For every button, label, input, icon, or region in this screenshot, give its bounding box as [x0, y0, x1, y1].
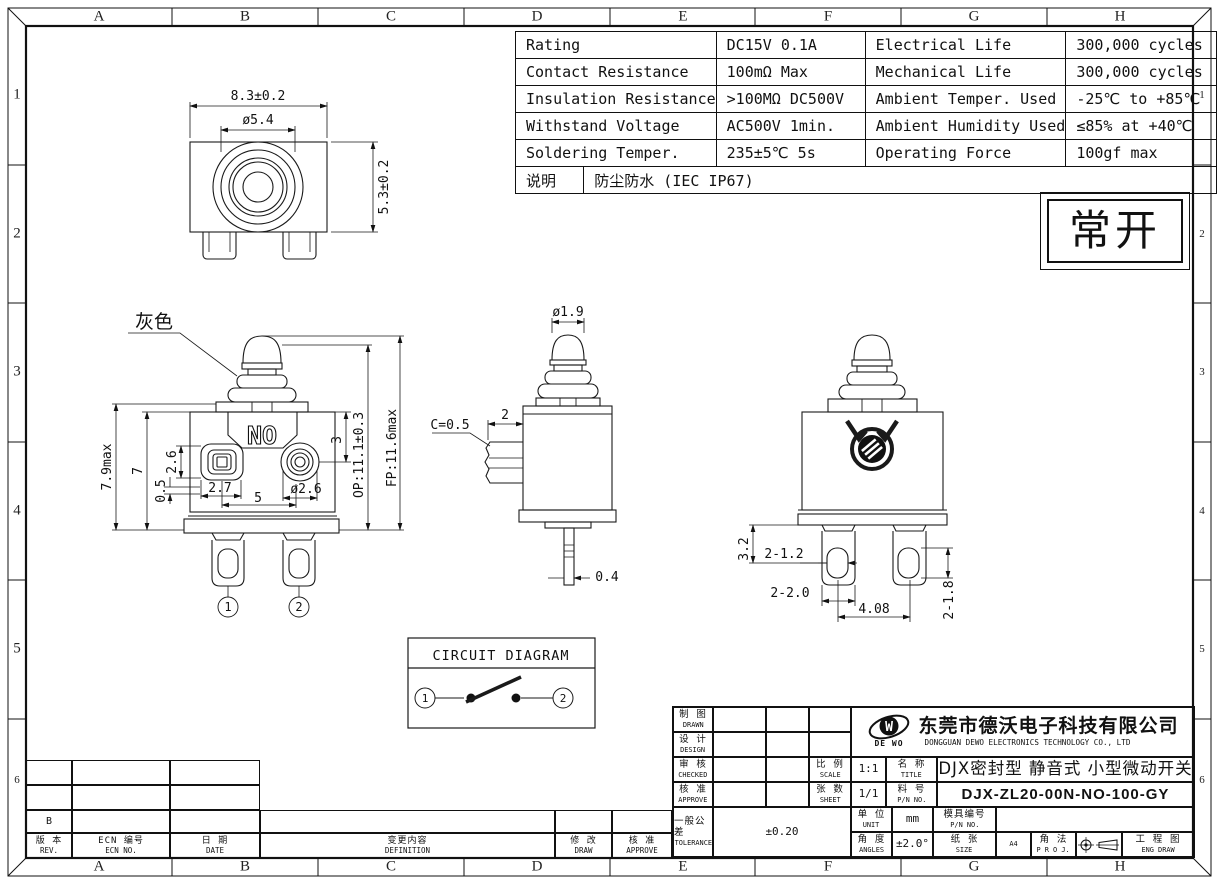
unit-label: 单 位 UNIT	[851, 807, 892, 832]
dim-side-thickness: 0.4	[595, 570, 619, 585]
tolerance-label: 一般公差 TOLERANCE	[673, 807, 713, 857]
dim-front-dia: ø2.6	[290, 482, 321, 497]
dim-front-hmax: 7.9max	[100, 443, 115, 490]
table-row: Withstand Voltage AC500V 1min. Ambient H…	[516, 113, 1217, 140]
dim-side-dia: ø1.9	[552, 305, 583, 320]
sheet-label: 张 数 SHEET	[809, 782, 851, 807]
dim-top-dia: ø5.4	[242, 113, 273, 128]
spec-label: Withstand Voltage	[516, 113, 717, 140]
left-zone-2: 2	[13, 226, 21, 243]
right-zone-5: 5	[1199, 643, 1205, 655]
left-zone-5: 5	[13, 641, 21, 658]
dim-top-height: 5.3±0.2	[377, 160, 392, 215]
no-plate-label: NO	[247, 421, 277, 450]
dim-top-width: 8.3±0.2	[231, 89, 286, 104]
bottom-zone-b: B	[240, 859, 250, 876]
svg-text:W: W	[886, 720, 894, 735]
top-zone-f: F	[824, 9, 832, 26]
front-view: NO	[100, 311, 404, 617]
rev-empty-cell	[170, 785, 260, 810]
table-row: 说明 防尘防水 (IEC IP67)	[516, 167, 1217, 194]
dewo-logo-mark	[847, 421, 897, 469]
unit-value: mm	[892, 807, 933, 832]
mold-value	[996, 807, 1194, 832]
rev-draw-cell	[555, 810, 612, 833]
rev-empty-cell	[26, 785, 72, 810]
design-extra-cell	[809, 732, 851, 757]
spec-value: 235±5℃ 5s	[716, 140, 865, 167]
bottom-zone-d: D	[532, 859, 543, 876]
dim-front-gap: 0.5	[154, 479, 169, 502]
rear-view-dimensions	[749, 525, 953, 622]
spec-value: DC15V 0.1A	[716, 32, 865, 59]
spec-label: Operating Force	[865, 140, 1066, 167]
switch-state-box: 常开	[1040, 192, 1190, 270]
switch-state-text: 常开	[1047, 199, 1183, 263]
top-zone-c: C	[386, 9, 396, 26]
paper-label: 纸 张 SIZE	[933, 832, 996, 857]
spec-label: Ambient Temper. Used	[865, 86, 1066, 113]
note-value: 防尘防水 (IEC IP67)	[584, 167, 1217, 194]
rev-value-cell: B	[26, 810, 72, 833]
right-zone-2: 2	[1199, 228, 1205, 240]
spec-label: Electrical Life	[865, 32, 1066, 59]
rev-empty-cell	[72, 760, 170, 785]
spec-value: ≤85% at +40℃	[1066, 113, 1217, 140]
circuit-terminal-2: 2	[560, 692, 567, 705]
table-row: Contact Resistance 100mΩ Max Mechanical …	[516, 59, 1217, 86]
rev-empty-cell	[170, 760, 260, 785]
top-zone-a: A	[94, 9, 105, 26]
dim-front-bossh: 2.6	[165, 450, 180, 473]
bottom-zone-h: H	[1115, 859, 1126, 876]
top-zone-d: D	[532, 9, 543, 26]
approve-label: 核 准 APPROVE	[673, 782, 713, 807]
terminal-2-label: 2	[295, 600, 302, 614]
dim-side-tabw: 2	[501, 408, 509, 423]
angles-value: ±2.0°	[892, 832, 933, 857]
dim-front-bossw: 2.7	[208, 481, 231, 496]
dim-side-chamfer: C=0.5	[430, 418, 469, 433]
color-label: 灰色	[135, 311, 173, 333]
rev-col-rev: 版 本 REV.	[26, 833, 72, 858]
right-zone-4: 4	[1199, 505, 1205, 517]
mold-label: 模具编号 P/N NO.	[933, 807, 996, 832]
left-zone-1: 1	[13, 87, 21, 104]
paper-size-value: A4	[996, 832, 1031, 857]
dim-rear-holes: 2-1.2	[764, 547, 803, 562]
dim-rear-pitch: 4.08	[858, 602, 889, 617]
drawn-label: 制 图 DRAWN	[673, 707, 713, 732]
spec-value: 300,000 cycles	[1066, 59, 1217, 86]
revision-table: B 版 本 REV. ECN 编号 ECN NO. 日 期 DATE 变更内容 …	[26, 760, 672, 858]
spec-value: 100gf max	[1066, 140, 1217, 167]
design-name-cell	[713, 732, 766, 757]
rev-col-ecn: ECN 编号 ECN NO.	[72, 833, 170, 858]
dim-rear-legs: 2-2.0	[770, 586, 809, 601]
top-view: 8.3±0.2 ø5.4 5.3±0.2	[190, 89, 392, 259]
company-name-zh: 东莞市德沃电子科技有限公司	[918, 716, 1178, 738]
first-angle-projection-icon	[1077, 836, 1121, 854]
dim-rear-slots: 2-1.8	[942, 580, 957, 619]
checked-name-cell	[713, 757, 766, 782]
scale-value: 1:1	[851, 757, 886, 782]
right-zone-6: 6	[1199, 774, 1205, 786]
bottom-zone-a: A	[94, 859, 105, 876]
side-view-dimensions	[432, 318, 590, 578]
rev-definition-cell	[260, 810, 555, 833]
left-zone-4: 4	[13, 503, 21, 520]
rev-date-cell	[170, 810, 260, 833]
dim-rear-edge: 3.2	[737, 537, 752, 560]
approve-date-cell	[766, 782, 809, 807]
design-label: 设 计 DESIGN	[673, 732, 713, 757]
svg-text:DE WO: DE WO	[875, 739, 904, 748]
note-label: 说明	[516, 167, 584, 194]
table-row: Rating DC15V 0.1A Electrical Life 300,00…	[516, 32, 1217, 59]
pn-label: 料 号 P/N NO.	[886, 782, 937, 807]
dim-front-op: OP:11.1±0.3	[352, 412, 367, 498]
rev-col-draw: 修 改 DRAW	[555, 833, 612, 858]
rear-view: 3.2 2-1.2 2-2.0 4.08 2-1.8	[737, 335, 957, 622]
top-zone-b: B	[240, 9, 250, 26]
spec-value: 300,000 cycles	[1066, 32, 1217, 59]
angles-label: 角 度 ANGLES	[851, 832, 892, 857]
top-zone-g: G	[969, 9, 980, 26]
top-zone-e: E	[678, 9, 687, 26]
sheet-value: 1/1	[851, 782, 886, 807]
company-name-en: DONGGUAN DEWO ELECTRONICS TECHNOLOGY CO.…	[925, 739, 1172, 748]
table-row: Insulation Resistance >100MΩ DC500V Ambi…	[516, 86, 1217, 113]
scale-label: 比 例 SCALE	[809, 757, 851, 782]
spec-table: Rating DC15V 0.1A Electrical Life 300,00…	[515, 31, 1217, 194]
drawn-date-cell	[766, 707, 809, 732]
dim-front-fp: FP:11.6max	[385, 409, 400, 487]
tolerance-value: ±0.20	[713, 807, 851, 857]
rev-empty-cell	[72, 785, 170, 810]
rev-empty-cell	[26, 760, 72, 785]
rev-ecn-cell	[72, 810, 170, 833]
bottom-zone-e: E	[678, 859, 687, 876]
dewo-logo: W DE WO	[866, 712, 912, 752]
spec-value: >100MΩ DC500V	[716, 86, 865, 113]
projection-symbol	[1076, 832, 1122, 857]
name-label: 名 称 TITLE	[886, 757, 937, 782]
circuit-terminal-1: 1	[422, 692, 429, 705]
bottom-zone-c: C	[386, 859, 396, 876]
spec-value: AC500V 1min.	[716, 113, 865, 140]
spec-label: Rating	[516, 32, 717, 59]
checked-label: 审 核 CHECKED	[673, 757, 713, 782]
rev-col-definition: 变更内容 DEFINITION	[260, 833, 555, 858]
dim-front-depth: 3	[330, 436, 345, 444]
design-date-cell	[766, 732, 809, 757]
company-block: W DE WO 东莞市德沃电子科技有限公司 DONGGUAN DEWO ELEC…	[851, 707, 1194, 757]
part-number: DJX-ZL20-00N-NO-100-GY	[937, 782, 1194, 807]
title-block: 制 图 DRAWN 设 计 DESIGN 审 核 CHECKED 核 准 APP…	[672, 706, 1195, 858]
left-zone-3: 3	[13, 364, 21, 381]
eng-draw-label: 工 程 图 ENG DRAW	[1122, 832, 1194, 857]
spec-label: Soldering Temper.	[516, 140, 717, 167]
approve-name-cell	[713, 782, 766, 807]
spec-label: Contact Resistance	[516, 59, 717, 86]
terminal-1-label: 1	[224, 600, 231, 614]
spec-label: Ambient Humidity Used	[865, 113, 1066, 140]
rev-col-approve: 核 准 APPROVE	[612, 833, 672, 858]
top-zone-h: H	[1115, 9, 1126, 26]
right-zone-3: 3	[1199, 366, 1205, 378]
circuit-title: CIRCUIT DIAGRAM	[433, 648, 570, 664]
spec-value: -25℃ to +85℃	[1066, 86, 1217, 113]
spec-label: Insulation Resistance	[516, 86, 717, 113]
drawing-title: DJX密封型 静音式 小型微动开关	[937, 757, 1194, 782]
rev-approve-cell	[612, 810, 672, 833]
dim-front-pitch: 5	[254, 491, 262, 506]
side-view: ø1.9 C=0.5 2 0.4	[430, 305, 618, 585]
bottom-zone-g: G	[969, 859, 980, 876]
drawn-name-cell	[713, 707, 766, 732]
dim-front-hbody: 7	[131, 467, 146, 475]
left-zone-6: 6	[14, 774, 20, 786]
circuit-diagram: CIRCUIT DIAGRAM 1 2	[408, 638, 595, 728]
projection-label: 角 法 P R O J.	[1031, 832, 1076, 857]
spec-value: 100mΩ Max	[716, 59, 865, 86]
table-row: Soldering Temper. 235±5℃ 5s Operating Fo…	[516, 140, 1217, 167]
spec-label: Mechanical Life	[865, 59, 1066, 86]
bottom-zone-f: F	[824, 859, 832, 876]
rev-col-date: 日 期 DATE	[170, 833, 260, 858]
drawn-extra-cell	[809, 707, 851, 732]
checked-date-cell	[766, 757, 809, 782]
engineering-drawing-sheet: 8.3±0.2 ø5.4 5.3±0.2 NO	[0, 0, 1219, 884]
